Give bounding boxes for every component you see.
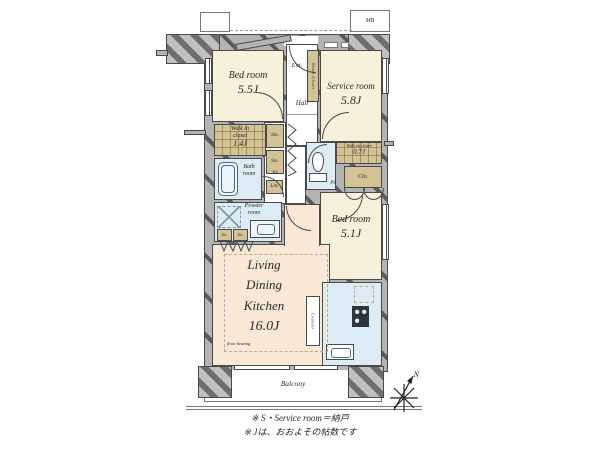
window-right-2 — [382, 204, 389, 260]
wic-main-size: 1.4J — [214, 140, 266, 149]
powder-line1: Powder — [240, 203, 268, 210]
bedroom-top-name: Bed room — [212, 70, 284, 81]
bathtub — [218, 162, 238, 196]
wall-fin-left-mid — [184, 130, 206, 135]
hall-label: Hall — [284, 100, 320, 108]
north-compass-icon: N — [386, 368, 422, 416]
powder-line2: room — [240, 210, 268, 217]
bedroom-top-size: 5.5J — [212, 83, 284, 96]
footnote-2: ※ Jは、おおよその帖数です — [244, 428, 357, 438]
floor-heating-label: floor heating — [227, 342, 277, 347]
powder-label: Powder room — [240, 203, 268, 216]
bath-label: Bath room — [236, 164, 262, 177]
stove — [352, 306, 369, 327]
ldk-line3: Kitchen — [212, 299, 316, 313]
service-name: Service room — [320, 82, 382, 92]
ldk-line2: Dining — [212, 278, 316, 292]
bathtub-inner — [221, 165, 235, 193]
refrigerator-space — [354, 286, 374, 303]
property-dashed-line — [230, 30, 352, 31]
pipe-space-label-2: PS — [326, 181, 340, 187]
kitchen-sink-basin — [331, 348, 351, 358]
service-size: 5.8J — [320, 94, 382, 107]
wall-fin-left-top — [156, 50, 168, 56]
bath-line2: room — [236, 171, 262, 178]
entrance-label: Ent. — [287, 62, 307, 69]
wic-small-size: 0.7J — [336, 149, 382, 157]
ldk-size: 16.0J — [212, 319, 316, 334]
window-left-2 — [205, 90, 212, 116]
wic-main-line1: Walk in — [214, 126, 266, 133]
closet-box: Clo. — [344, 166, 382, 188]
exterior-box — [200, 12, 230, 32]
bedroom-top-label: Bed room 5.5J — [212, 70, 284, 96]
kitchen-sink — [326, 344, 354, 360]
service-label: Service room 5.8J — [320, 82, 382, 107]
wic-main-line2: closet — [214, 133, 266, 140]
bifold-door-vertical — [287, 124, 297, 176]
bedroom-right-label: Bed room 5.1J — [320, 214, 382, 240]
wall-vent-1 — [324, 42, 338, 48]
vanity-counter — [250, 220, 280, 238]
vanity-sink — [257, 224, 275, 235]
floor-plan: MB Clo. Shoes Closet Sto. Sto. Lin. Sto.… — [0, 0, 600, 450]
window-right-1 — [382, 58, 389, 94]
toilet-tank — [309, 173, 327, 182]
wall-vent-2 — [341, 42, 349, 48]
wall-fin-right — [384, 141, 394, 146]
bedroom-right-size: 5.1J — [320, 227, 382, 240]
ldk-label: Living Dining Kitchen 16.0J — [212, 258, 316, 334]
footnote-1: ※ S・Service room＝納戸 — [251, 414, 349, 424]
window-left-1 — [205, 58, 212, 84]
north-letter: N — [413, 370, 420, 379]
meter-box: MB — [350, 10, 390, 32]
bath-line1: Bath — [236, 164, 262, 171]
bifold-door-horizontal — [220, 240, 254, 252]
entrance-step-line — [287, 114, 317, 115]
wic-small-label: Walk in closet 0.7J — [336, 144, 382, 157]
storage-box-1: Sto. — [266, 124, 284, 148]
wic-main-label: Walk in closet 1.4J — [214, 126, 266, 149]
ldk-line1: Living — [212, 258, 316, 272]
washing-machine-space — [217, 206, 241, 228]
pipe-space-label-1: PS — [266, 171, 284, 177]
balcony-label: Balcony — [204, 380, 382, 388]
bedroom-right-name: Bed room — [320, 214, 382, 225]
